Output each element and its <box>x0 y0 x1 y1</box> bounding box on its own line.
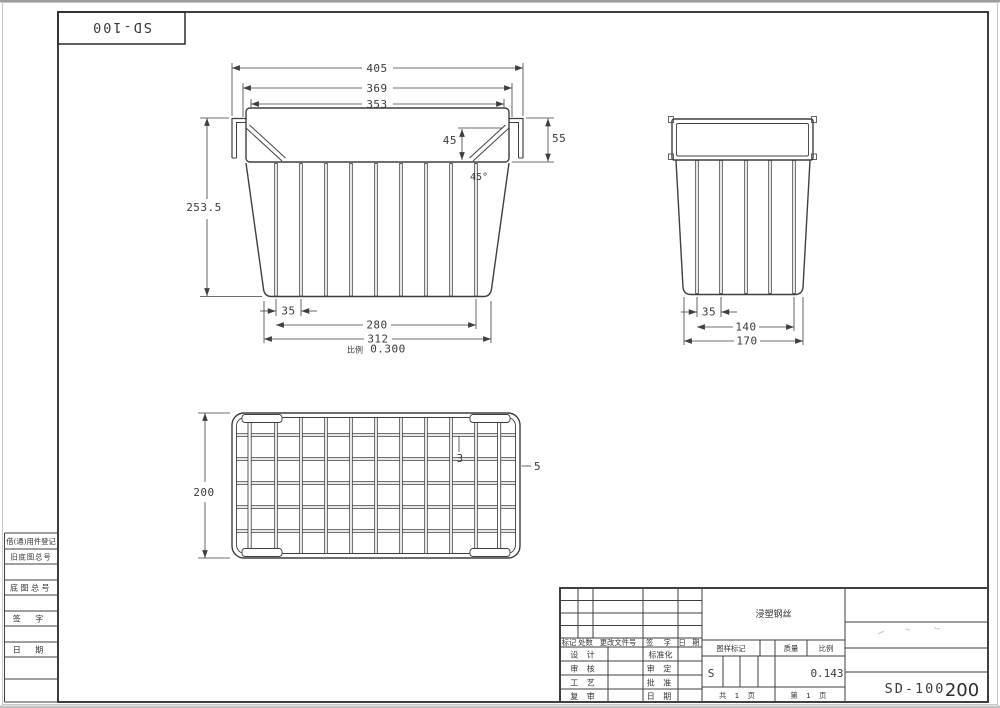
dim-rim-width: 369 <box>366 82 387 95</box>
scale-label: 比例 <box>819 644 834 653</box>
dim-brace-angle: 45° <box>470 172 488 183</box>
dim-wire-span-side: 140 <box>735 321 756 334</box>
dim-grid-wire-dia: 3 <box>456 452 463 465</box>
margin-row-date: 日 期 <box>13 646 50 655</box>
margin-row-signature: 签 字 <box>13 614 50 624</box>
rev-header-date: 日 期 <box>679 638 702 647</box>
drawing-number: SD-100 <box>885 681 946 697</box>
stage-mark: S <box>708 667 715 680</box>
role-process: 工 艺 <box>570 679 598 688</box>
front-scale-label: 比例 <box>347 345 363 355</box>
dim-total-height: 253.5 <box>186 201 222 214</box>
weight-label: 质量 <box>784 644 799 653</box>
dim-overall-width: 405 <box>366 62 387 75</box>
dim-bottom-width-side: 170 <box>736 335 757 348</box>
role-ratify: 批 准 <box>647 678 675 688</box>
scale-value: 0.143 <box>810 667 843 680</box>
rev-header-mark: 标记 <box>562 638 577 647</box>
stamp-label: 图样标记 <box>716 644 746 653</box>
front-scale-value: 0.300 <box>370 343 406 356</box>
dim-hook-height: 55 <box>552 132 566 145</box>
sheet-total: 共 1 页 <box>719 691 758 700</box>
role-recheck: 复 审 <box>570 691 598 701</box>
dim-wire-pitch-front: 35 <box>281 305 295 318</box>
plan-view <box>232 413 520 558</box>
role-standardization: 标准化 <box>649 650 673 660</box>
margin-row-borrowed: 借(通)用件登记 <box>6 537 56 546</box>
corner-drawing-no: SD-100 <box>91 19 152 35</box>
margin-row-old-master-no: 旧底图总号 <box>10 553 51 562</box>
dim-rim-wire-dia: 5 <box>534 460 541 473</box>
role-design: 设 计 <box>570 650 598 660</box>
dim-depth: 200 <box>193 486 214 499</box>
sheet-number: 第 1 页 <box>791 691 830 700</box>
page-edges <box>0 0 1000 708</box>
rev-header-doc-no: 更改文件号 <box>600 638 636 647</box>
dim-brace-height: 45 <box>443 134 457 147</box>
margin-row-master-no: 底图总号 <box>10 583 52 593</box>
dim-wire-pitch-side: 35 <box>702 306 716 319</box>
role-date: 日 期 <box>647 692 675 701</box>
rev-header-signature: 签 字 <box>646 638 675 647</box>
material-name: 浸塑钢丝 <box>755 608 791 620</box>
dim-wire-span-front: 280 <box>366 319 387 332</box>
drawing-sheet: SD-100 <box>0 0 1000 708</box>
model-number: 200 <box>945 680 979 701</box>
role-check: 审 核 <box>570 664 598 674</box>
rev-header-count: 处数 <box>578 638 593 647</box>
dim-opening-width: 353 <box>366 98 387 111</box>
role-approve-examine: 审 定 <box>647 664 675 674</box>
